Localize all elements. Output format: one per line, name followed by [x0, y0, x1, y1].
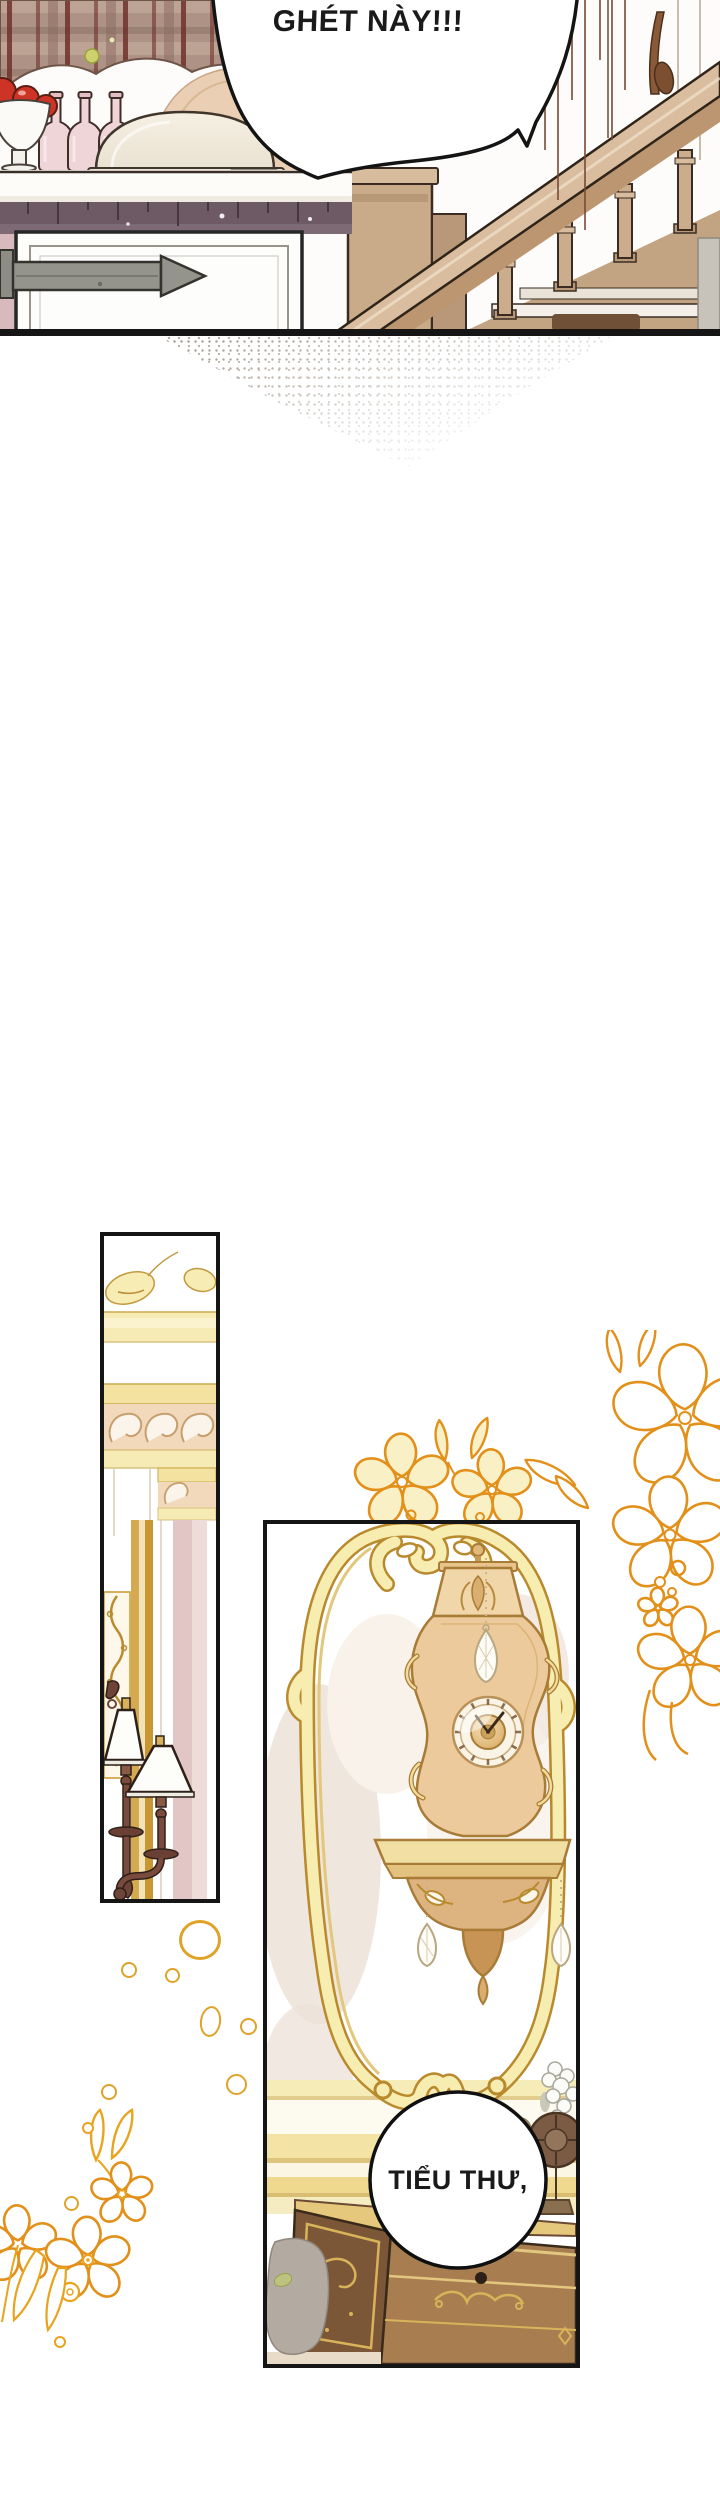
kitchen-stairs-scene: [0, 0, 720, 336]
clock-finial: [472, 1544, 484, 1556]
speech-bubble-text: TIỂU THƯ,: [367, 2166, 549, 2194]
counter: [0, 170, 352, 204]
step-shadow: [552, 314, 640, 331]
flower-line-art-bottom-left: [0, 2102, 180, 2362]
panel-wall-lamps: [100, 1232, 220, 1903]
gold-ring-decoration: [179, 1920, 221, 1960]
gold-ring-decoration: [101, 2084, 117, 2100]
gold-ring-decoration: [64, 2196, 79, 2211]
stair-step: [520, 288, 720, 299]
gold-ring-decoration: [165, 1968, 180, 1983]
panel-bottom-border: [0, 329, 720, 336]
sparkle-dot: [85, 49, 99, 63]
gold-ring-decoration: [240, 2018, 257, 2035]
comic-page: GHÉT NÀY!!!: [0, 0, 720, 2500]
gold-ring-decoration: [198, 2005, 223, 2039]
panel-kitchen-stairs: GHÉT NÀY!!!: [0, 0, 720, 336]
gray-pot: [267, 2239, 328, 2355]
drawer-pull: [475, 2272, 487, 2284]
clock-dial: [452, 1697, 523, 1767]
counter-apron: [0, 202, 352, 234]
panel-clock: [263, 1520, 580, 2368]
wall-pillar: [698, 238, 720, 336]
clock-scene: [267, 1524, 576, 2364]
dust-fade-texture: [150, 337, 620, 467]
wall-lamps-scene: [104, 1236, 216, 1899]
gold-ring-decoration: [226, 2074, 247, 2095]
gold-ring-decoration: [121, 1962, 137, 1978]
cabinet-door: [0, 232, 302, 336]
flower-cluster-over-panel: [351, 1416, 534, 1531]
sparkle-dot: [110, 38, 115, 43]
flower-cluster-bottom-left: [0, 2110, 155, 2347]
speech-bubble-text: GHÉT NÀY!!!: [231, 6, 504, 38]
